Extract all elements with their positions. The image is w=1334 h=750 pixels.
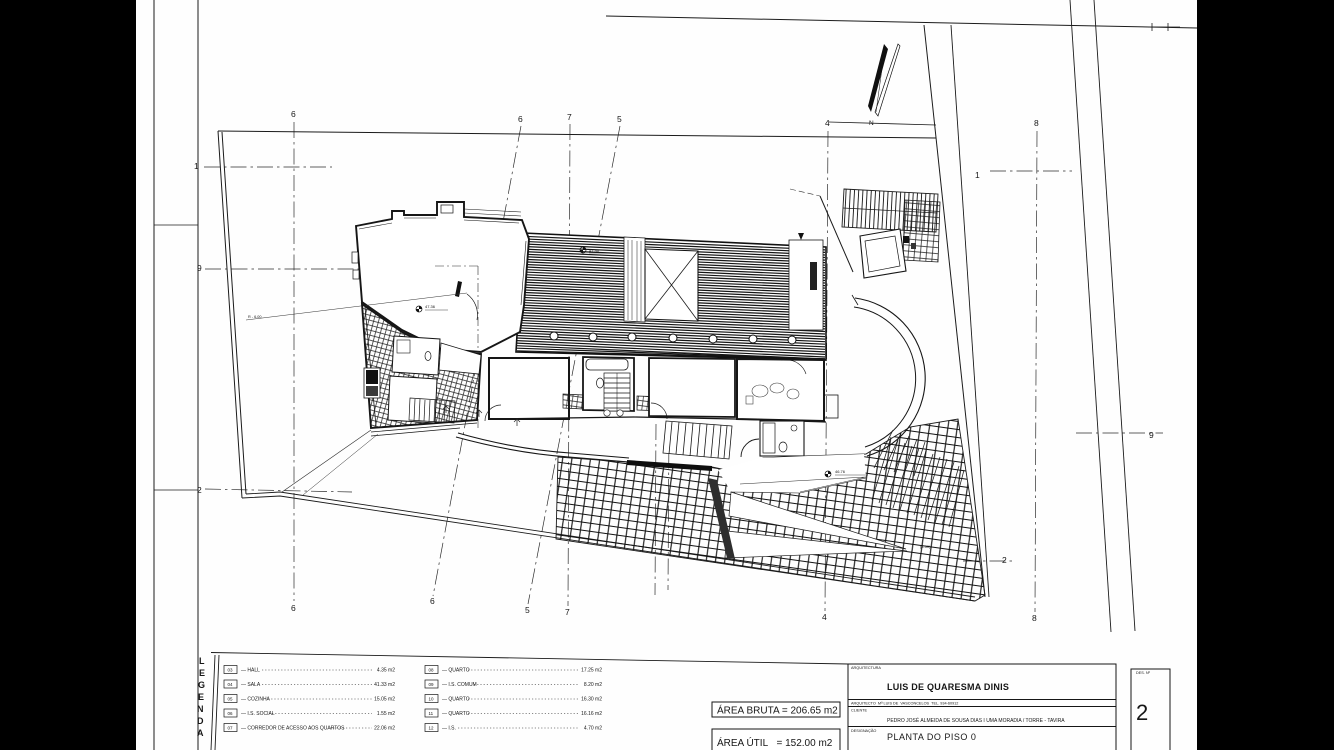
svg-text:4.35 m2: 4.35 m2 [377, 668, 395, 674]
svg-text:8: 8 [1034, 118, 1039, 128]
svg-text:N: N [869, 120, 874, 127]
svg-text:CLIENTE: CLIENTE [851, 709, 868, 713]
svg-text:4.70 m2: 4.70 m2 [584, 726, 602, 732]
svg-text:PEDRO JOSÉ ALMEIDA DE SOUSA DI: PEDRO JOSÉ ALMEIDA DE SOUSA DIAS I UMA M… [887, 717, 1065, 724]
svg-text:2: 2 [197, 485, 202, 495]
svg-text:10: 10 [429, 697, 435, 702]
svg-text:07: 07 [228, 726, 234, 731]
svg-text:— QUARTO: — QUARTO [442, 697, 470, 703]
svg-text:— SALA: — SALA [241, 682, 261, 688]
svg-text:16.16 m2: 16.16 m2 [581, 711, 602, 717]
svg-text:— I.S. COMUM: — I.S. COMUM [442, 682, 477, 688]
svg-text:16.30 m2: 16.30 m2 [581, 697, 602, 703]
svg-text:— CORREDOR DE ACESSO AOS QUART: — CORREDOR DE ACESSO AOS QUARTOS [241, 726, 345, 732]
svg-text:E: E [198, 692, 204, 702]
svg-text:05: 05 [228, 697, 234, 702]
svg-text:L: L [199, 656, 205, 666]
svg-text:— QUARTO: — QUARTO [442, 711, 470, 717]
svg-text:46.76: 46.76 [835, 469, 846, 474]
svg-text:4: 4 [825, 118, 830, 128]
svg-text:6: 6 [430, 596, 435, 606]
svg-text:7: 7 [565, 607, 570, 617]
svg-text:9: 9 [197, 263, 202, 273]
svg-text:A: A [197, 728, 204, 738]
svg-text:(4.50): (4.50) [920, 544, 931, 549]
svg-text:8: 8 [1032, 613, 1037, 623]
svg-text:DESIGNAÇÃO: DESIGNAÇÃO [851, 728, 876, 733]
svg-text:ÁREA ÚTIL = 152.00 m2: ÁREA ÚTIL = 152.00 m2 [717, 736, 833, 749]
svg-text:1.55 m2: 1.55 m2 [377, 711, 395, 717]
svg-text:N: N [197, 704, 204, 714]
svg-text:04: 04 [228, 682, 234, 687]
svg-text:08: 08 [429, 668, 435, 673]
svg-text:06: 06 [228, 711, 234, 716]
svg-text:1: 1 [975, 170, 980, 180]
svg-text:R - 6.00: R - 6.00 [248, 315, 262, 319]
svg-text:22.06 m2: 22.06 m2 [374, 726, 395, 732]
svg-text:15.05 m2: 15.05 m2 [374, 697, 395, 703]
svg-text:ARQUITECTO Mª LUIS DE VASCON: ARQUITECTO Mª LUIS DE VASCONCELOS TEL. 9… [851, 702, 958, 706]
svg-text:G: G [198, 680, 205, 690]
svg-text:LUIS DE QUARESMA DINIS: LUIS DE QUARESMA DINIS [887, 682, 1009, 692]
svg-text:12: 12 [429, 726, 435, 731]
svg-text:8.20 m2: 8.20 m2 [584, 682, 602, 688]
svg-text:6: 6 [291, 603, 296, 613]
svg-text:4: 4 [822, 612, 827, 622]
svg-text:— HALL: — HALL [241, 668, 260, 674]
svg-text:47.36: 47.36 [425, 304, 436, 309]
svg-text:47.30: 47.30 [589, 248, 600, 253]
svg-text:11: 11 [429, 711, 434, 716]
svg-text:— I.S.: — I.S. [442, 726, 456, 732]
svg-text:09: 09 [429, 682, 435, 687]
svg-text:1: 1 [194, 161, 199, 171]
svg-text:— COZINHA: — COZINHA [241, 697, 271, 703]
svg-text:— I.S. SOCIAL: — I.S. SOCIAL [241, 711, 275, 717]
svg-text:9: 9 [1149, 430, 1154, 440]
svg-text:ÁREA BRUTA = 206.65 m2: ÁREA BRUTA = 206.65 m2 [717, 704, 838, 717]
svg-text:PLANTA DO PISO 0: PLANTA DO PISO 0 [887, 732, 976, 742]
svg-text:6: 6 [518, 114, 523, 124]
svg-text:17.25 m2: 17.25 m2 [581, 668, 602, 674]
svg-text:DES. Nº: DES. Nº [1136, 671, 1151, 675]
svg-text:6: 6 [291, 109, 296, 119]
svg-text:5: 5 [525, 605, 530, 615]
svg-text:— QUARTO: — QUARTO [442, 668, 470, 674]
svg-text:7: 7 [567, 112, 572, 122]
svg-text:2: 2 [1002, 555, 1007, 565]
svg-text:D: D [197, 716, 204, 726]
svg-text:E: E [199, 668, 205, 678]
svg-text:03: 03 [228, 668, 234, 673]
svg-text:5: 5 [617, 114, 622, 124]
svg-text:ARQUITECTURA: ARQUITECTURA [851, 666, 881, 670]
svg-text:2: 2 [1136, 700, 1148, 725]
svg-text:41.33 m2: 41.33 m2 [374, 682, 395, 688]
